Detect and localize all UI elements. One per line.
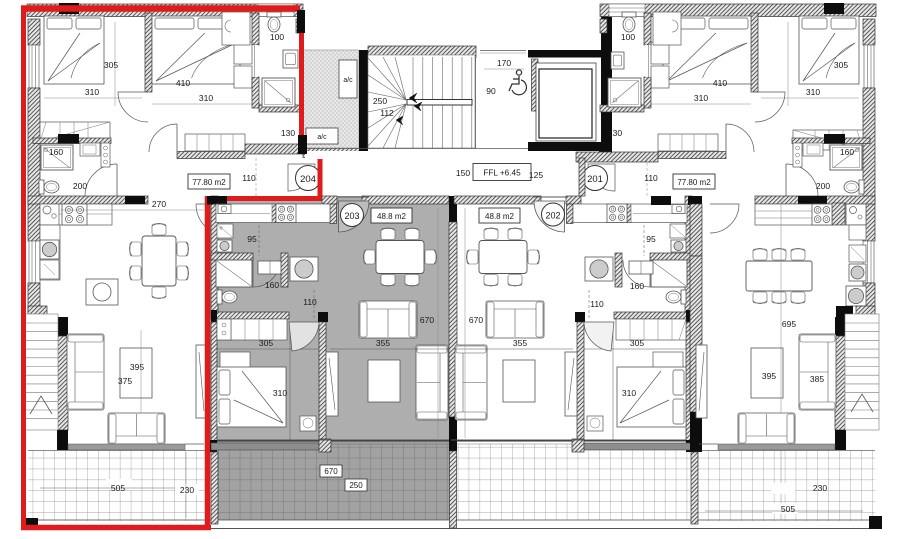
svg-text:670: 670 [420,315,434,325]
svg-text:202: 202 [545,211,560,221]
svg-text:410: 410 [176,78,190,88]
svg-text:305: 305 [834,60,848,70]
svg-text:310: 310 [694,93,708,103]
svg-text:200: 200 [816,181,830,191]
svg-text:230: 230 [180,485,194,495]
svg-text:410: 410 [713,78,727,88]
svg-text:505: 505 [781,504,795,514]
svg-text:310: 310 [622,388,636,398]
svg-text:250: 250 [373,96,387,106]
svg-text:95: 95 [646,234,656,244]
svg-text:a/c: a/c [317,134,327,141]
svg-text:112: 112 [380,108,394,118]
svg-text:77.80 m2: 77.80 m2 [677,178,711,187]
svg-text:250: 250 [349,481,363,490]
svg-text:150: 150 [456,168,470,178]
svg-text:100: 100 [270,32,284,42]
svg-text:201: 201 [587,174,603,185]
svg-text:355: 355 [513,338,527,348]
svg-text:310: 310 [806,87,820,97]
svg-text:90: 90 [486,86,496,96]
svg-text:200: 200 [73,181,87,191]
svg-text:48.8 m2: 48.8 m2 [377,212,406,221]
svg-text:505: 505 [111,483,125,493]
svg-text:77.80 m2: 77.80 m2 [192,178,226,187]
svg-text:a/c: a/c [343,77,353,84]
svg-text:310: 310 [85,87,99,97]
svg-text:130: 130 [281,128,295,138]
svg-text:305: 305 [630,338,644,348]
svg-text:670: 670 [469,315,483,325]
svg-text:230: 230 [813,483,827,493]
svg-text:310: 310 [273,388,287,398]
svg-text:310: 310 [199,93,213,103]
svg-text:355: 355 [376,338,390,348]
svg-text:305: 305 [259,338,273,348]
svg-text:305: 305 [104,60,118,70]
svg-text:110: 110 [590,299,604,309]
svg-text:395: 395 [130,362,144,372]
svg-text:375: 375 [118,376,132,386]
svg-text:204: 204 [300,174,316,185]
svg-text:160: 160 [49,147,63,157]
svg-text:110: 110 [644,173,658,183]
svg-text:170: 170 [497,58,511,68]
svg-text:160: 160 [840,147,854,157]
svg-text:270: 270 [152,199,166,209]
svg-text:670: 670 [324,467,338,476]
svg-text:160: 160 [265,280,279,290]
svg-text:203: 203 [344,211,359,221]
svg-text:110: 110 [303,297,317,307]
svg-text:385: 385 [810,374,824,384]
svg-text:395: 395 [762,371,776,381]
svg-text:FFL +6.45: FFL +6.45 [483,169,521,178]
svg-text:100: 100 [621,32,635,42]
svg-text:130: 130 [608,128,622,138]
svg-text:48.8 m2: 48.8 m2 [485,212,514,221]
svg-text:125: 125 [529,170,543,180]
svg-text:110: 110 [242,173,256,183]
svg-text:160: 160 [630,281,644,291]
svg-text:695: 695 [782,319,796,329]
svg-text:95: 95 [247,234,257,244]
